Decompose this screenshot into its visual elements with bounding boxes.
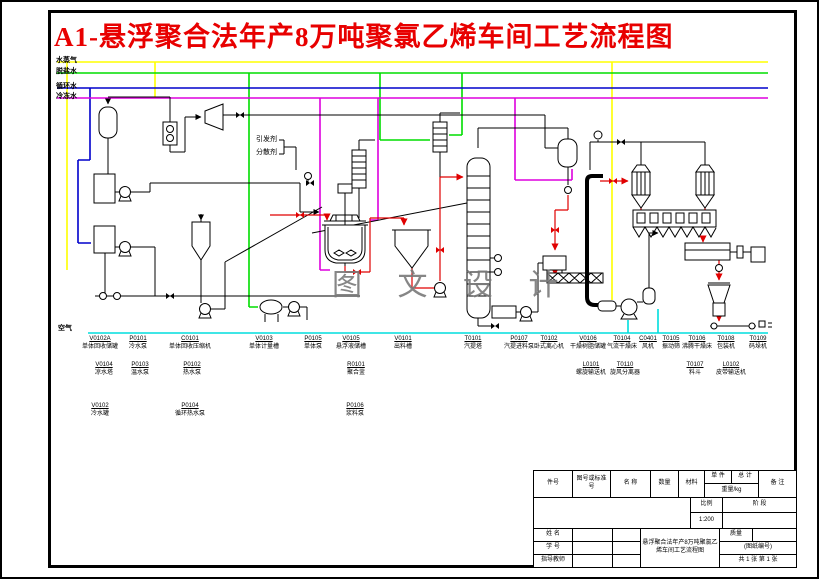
tb-unit: 单 件 (704, 470, 732, 484)
compressor (205, 104, 223, 130)
tb-scale-label: 比例 (690, 497, 723, 513)
tb-empty (572, 528, 613, 542)
tb-remark: 备 注 (758, 470, 797, 498)
bag-filter-2 (696, 163, 714, 208)
utility-label-steam: 水蒸气 (56, 57, 77, 64)
tb-stage-value (722, 512, 797, 529)
reflux-condenser (352, 150, 366, 188)
equipment-label: V0102冷水罐 (91, 403, 109, 418)
equipment-label: T0101汽提塔 (464, 336, 482, 351)
tb-name: 名 称 (610, 470, 651, 498)
tb-stage-label: 阶 段 (722, 497, 797, 513)
utility-label-chilled-water: 冷冻水 (56, 93, 77, 100)
silencer (598, 301, 616, 311)
riser-duct (587, 176, 603, 305)
equipment-label: L0102皮带输送机 (716, 362, 746, 377)
equipment-label: C0401风机 (639, 336, 657, 351)
equipment-label: P0101冷水泵 (129, 336, 147, 351)
inline-filter (163, 122, 177, 145)
equipment-label: T0106沸腾干燥床 (682, 336, 712, 351)
tb-material: 材料 (678, 470, 705, 498)
reagent-bracket (279, 140, 296, 170)
tb-std-no: 图号或标准号 (572, 470, 611, 498)
tb-empty (752, 528, 797, 542)
reagent-label-dispersant: 分散剂 (256, 149, 277, 156)
tb-advisor-label: 指导教师 (533, 554, 573, 568)
monomer-recovery-tank (99, 107, 117, 138)
equipment-label: V0101出料槽 (394, 336, 412, 351)
bag-filter-1 (632, 163, 650, 208)
equipment-label: P0107汽提进料泵 (504, 336, 534, 351)
equipment-label: P0102热水泵 (183, 362, 201, 377)
pump (119, 187, 131, 202)
utility-label-circulating-water: 循环水 (56, 83, 77, 90)
tb-empty (612, 528, 641, 542)
tb-bom-empty (533, 497, 691, 529)
tb-qty: 数量 (650, 470, 679, 498)
tb-scale-value: 1:200 (690, 512, 723, 529)
equipment-label: V0103单体计量槽 (249, 336, 279, 351)
watermark: 图 文 设 计 (332, 260, 573, 304)
tb-empty (612, 554, 641, 568)
equipment-label: T0107料斗 (686, 362, 703, 377)
belt-conveyor (711, 321, 765, 329)
blower (621, 299, 637, 319)
pump (119, 242, 131, 257)
equipment-label: T0109码垛机 (749, 336, 767, 351)
metering-cone-vessel (192, 222, 210, 260)
equipment-label: V0105悬浮液储槽 (336, 336, 366, 351)
utility-label-desalted-water: 脱盐水 (56, 68, 77, 75)
tb-student-no-label: 学 号 (533, 541, 573, 555)
equipment-label: T0110旋风分离器 (610, 362, 640, 377)
tb-empty (572, 554, 613, 568)
equipment-label: P0103温水泵 (131, 362, 149, 377)
equipment-label: T0102卧式离心机 (534, 336, 564, 351)
cold-water-tank (94, 226, 115, 253)
equipment-label: P0105单体泵 (304, 336, 322, 351)
pump (520, 307, 532, 322)
tb-drawing-no: (图纸编号) (719, 541, 797, 555)
equipment-label: P0106浆料泵 (346, 403, 364, 418)
tb-weight: 重量/kg (704, 483, 759, 498)
cad-screenshot: { "title": "A1-悬浮聚合法年产8万吨聚氯乙烯车间工艺流程图", "… (0, 0, 819, 579)
tb-empty (572, 541, 613, 555)
equipment-label: V0106干燥树脂储罐 (570, 336, 606, 351)
tb-item-no: 件号 (533, 470, 573, 498)
fluidized-bed-dryer (633, 210, 716, 237)
drawing-title: A1-悬浮聚合法年产8万吨聚氯乙烯车间工艺流程图 (54, 15, 674, 54)
equipment-label: R0101聚合釜 (347, 362, 365, 377)
overhead-condenser (433, 122, 447, 152)
slurry-tank (558, 139, 577, 167)
title-block: 件号 图号或标准号 名 称 数量 材料 单 件 总 计 重量/kg 备 注 比例… (533, 470, 797, 568)
pump (199, 304, 211, 319)
vibrating-screen (685, 243, 765, 262)
tb-mass-label: 质量 (719, 528, 753, 542)
seal-pot (492, 306, 516, 318)
tb-sheet-info: 共 1 张 第 1 张 (719, 554, 797, 568)
air-heater (643, 288, 655, 304)
hot-water-tank (94, 174, 115, 203)
equipment-label: C0101单体回收压缩机 (169, 336, 211, 351)
equipment-label: V0104凉水塔 (95, 362, 113, 377)
equipment-label: L0101螺旋输送机 (576, 362, 606, 377)
tb-empty (612, 541, 641, 555)
pump (288, 302, 300, 317)
tb-drawing-title: 悬浮聚合法年产8万吨聚氯乙烯车间工艺流程图 (640, 528, 720, 568)
utility-label-air: 空气 (58, 325, 72, 332)
equipment-label: P0104循环热水泵 (175, 403, 205, 418)
polymerization-reactor (322, 184, 368, 266)
tb-total: 总 计 (731, 470, 759, 484)
packing-hopper (708, 285, 730, 316)
equipment-label: T0105振动筛 (662, 336, 680, 351)
reagent-label-initiator: 引发剂 (256, 136, 277, 143)
horizontal-vessel (260, 300, 282, 314)
tb-name-label: 姓 名 (533, 528, 573, 542)
equipment-label: T0104气流干燥床 (607, 336, 637, 351)
equipment-label: V0102A单体回收储罐 (82, 336, 118, 351)
equipment-label: T0108包装机 (717, 336, 735, 351)
